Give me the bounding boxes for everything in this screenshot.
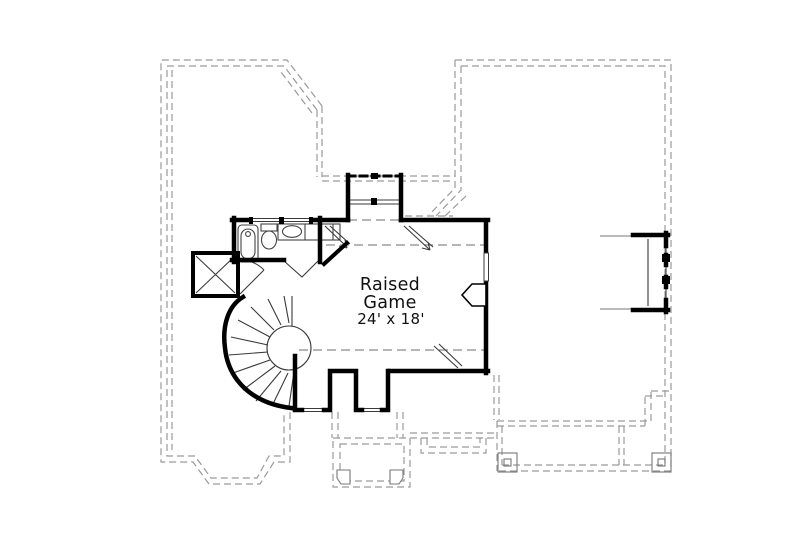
room-dimensions: 24' x 18'	[357, 310, 425, 328]
porch-post-icon	[337, 470, 350, 484]
mullion-tick	[662, 254, 670, 262]
mullion-tick	[249, 217, 253, 224]
porch-post-icon	[390, 470, 403, 484]
mullion-tick	[371, 173, 378, 179]
room-name-line1: Raised	[360, 275, 420, 295]
right-wall-window	[484, 253, 489, 281]
paper-background	[0, 0, 800, 535]
mullion-tick	[662, 276, 670, 284]
floor-plan-drawing: Raised Game 24' x 18'	[0, 0, 800, 535]
mullion-tick	[371, 198, 377, 205]
room-label: Raised Game 24' x 18'	[357, 275, 425, 328]
mullion-tick	[279, 217, 284, 224]
floor-plan-page: Raised Game 24' x 18'	[0, 0, 800, 535]
mullion-tick	[309, 217, 313, 224]
